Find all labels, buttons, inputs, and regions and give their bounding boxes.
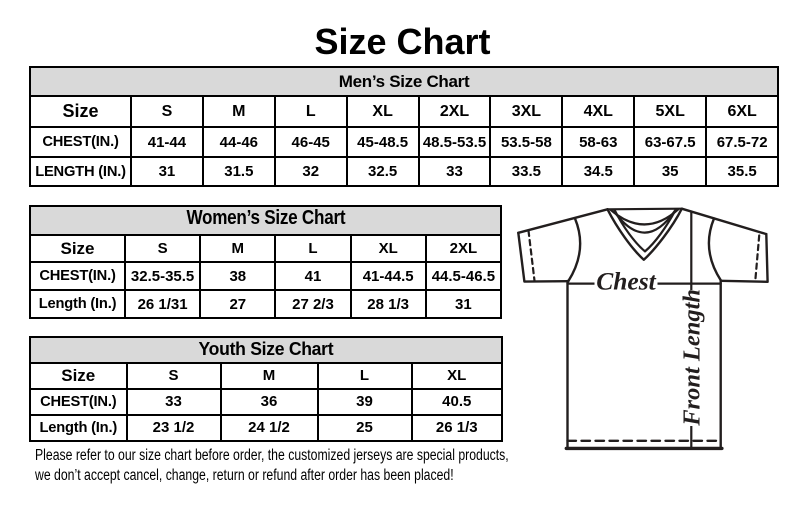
svg-text:Chest: Chest xyxy=(596,267,656,296)
svg-text:Front Length: Front Length xyxy=(679,289,706,427)
